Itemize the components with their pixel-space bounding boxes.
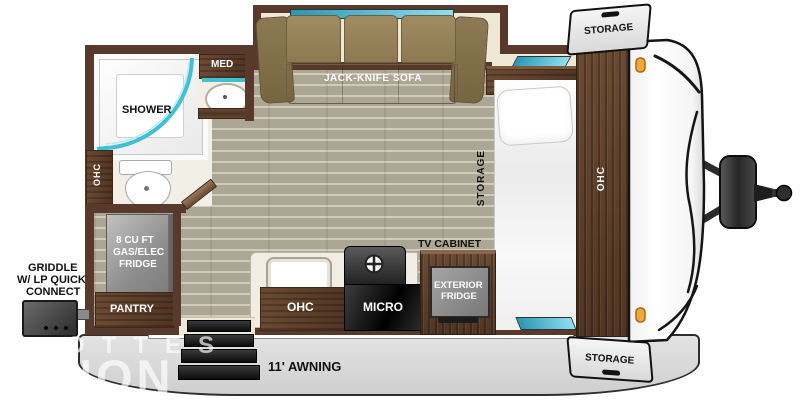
bed-foot-window <box>515 317 576 330</box>
griddle-label-1: GRIDDLE <box>28 262 78 274</box>
griddle-label-3: CONNECT <box>26 286 80 298</box>
exterior-fridge-label-2: FRIDGE <box>441 291 477 302</box>
propane-cover <box>720 156 756 228</box>
hitch-coupler <box>754 184 774 202</box>
marker-light-bottom <box>636 308 645 322</box>
tv-cabinet-label: TV CABINET <box>418 238 481 250</box>
jack-knife-sofa: JACK-KNIFE SOFA <box>258 15 484 103</box>
sofa-back-cushions <box>286 15 456 63</box>
sofa-label: JACK-KNIFE SOFA <box>324 73 422 84</box>
fridge-label-2: GAS/ELEC <box>113 247 164 258</box>
griddle <box>22 300 78 337</box>
hitch-ball <box>777 186 792 201</box>
storage-flap-bottom: STORAGE <box>566 336 653 383</box>
storage-flap-top-label: STORAGE <box>584 22 634 37</box>
awning-label: 11' AWNING <box>268 359 341 374</box>
sink-cabinet-front <box>198 108 252 119</box>
entry-steps <box>178 318 258 388</box>
micro-label: MICRO <box>363 300 403 314</box>
floorplan: 11' AWNING SHOWER MED OHC 8 CU FT GAS/EL… <box>0 0 800 400</box>
bathroom-sink-drain <box>223 95 227 99</box>
sofa-seat <box>286 64 458 104</box>
shower-label: SHOWER <box>122 104 172 116</box>
front-ohc-label: OHC <box>596 166 607 191</box>
med-label: MED <box>211 59 233 70</box>
storage-flap-bottom-label: STORAGE <box>585 352 635 366</box>
griddle-feet <box>42 326 70 330</box>
bathroom-wall-bottom <box>86 204 186 213</box>
fridge-label-3: FRIDGE <box>119 259 157 270</box>
marker-light-top <box>636 58 645 72</box>
kitchen-ohc-label: OHC <box>287 300 314 314</box>
exterior-fridge-label-1: EXTERIOR <box>434 280 483 291</box>
bed-pillow <box>496 85 574 146</box>
toilet-flush-dot <box>144 186 149 191</box>
griddle-label-2: W/ LP QUICK <box>17 274 86 286</box>
med-accent-strip <box>202 78 245 82</box>
burner-icon <box>363 253 385 275</box>
exterior-fridge-vent <box>438 317 478 323</box>
bath-wall-right <box>245 45 254 121</box>
front-cap <box>615 34 715 350</box>
fridge-label-1: 8 CU FT <box>116 235 154 246</box>
pantry-wall-right <box>173 208 181 326</box>
pantry-label: PANTRY <box>110 303 154 315</box>
bath-ohc-label: OHC <box>92 163 102 186</box>
under-bed-storage-label: STORAGE <box>476 150 487 206</box>
storage-flap-top: STORAGE <box>566 3 652 56</box>
